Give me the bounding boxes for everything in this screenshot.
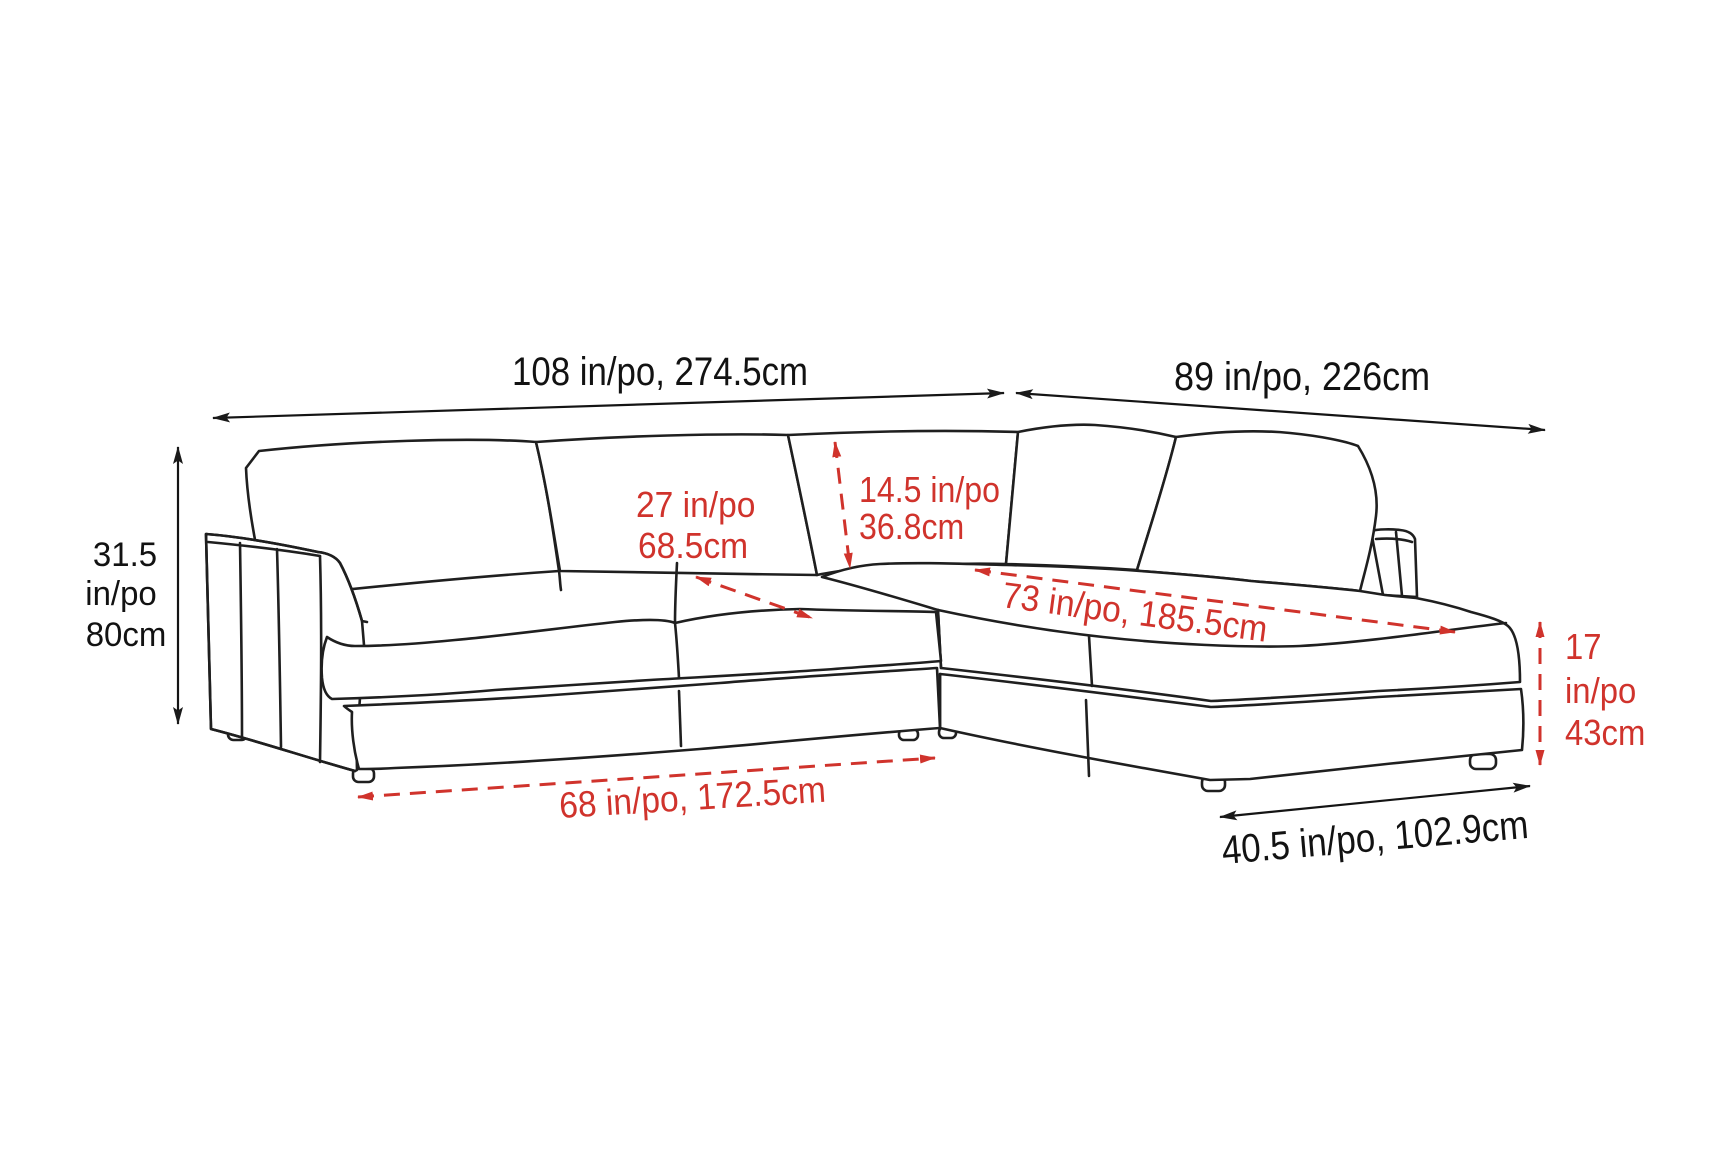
svg-text:68.5cm: 68.5cm	[638, 526, 748, 567]
svg-text:in/po: in/po	[1565, 671, 1636, 711]
svg-text:14.5 in/po: 14.5 in/po	[859, 470, 1000, 510]
svg-text:43cm: 43cm	[1565, 713, 1645, 753]
svg-text:89 in/po, 226cm: 89 in/po, 226cm	[1174, 355, 1430, 399]
svg-text:31.5: 31.5	[93, 537, 157, 575]
svg-text:108 in/po, 274.5cm: 108 in/po, 274.5cm	[512, 349, 808, 394]
svg-text:17: 17	[1565, 627, 1602, 667]
svg-text:in/po: in/po	[85, 576, 157, 614]
svg-text:36.8cm: 36.8cm	[859, 507, 964, 547]
svg-text:80cm: 80cm	[86, 617, 167, 655]
svg-text:27 in/po: 27 in/po	[636, 485, 755, 526]
